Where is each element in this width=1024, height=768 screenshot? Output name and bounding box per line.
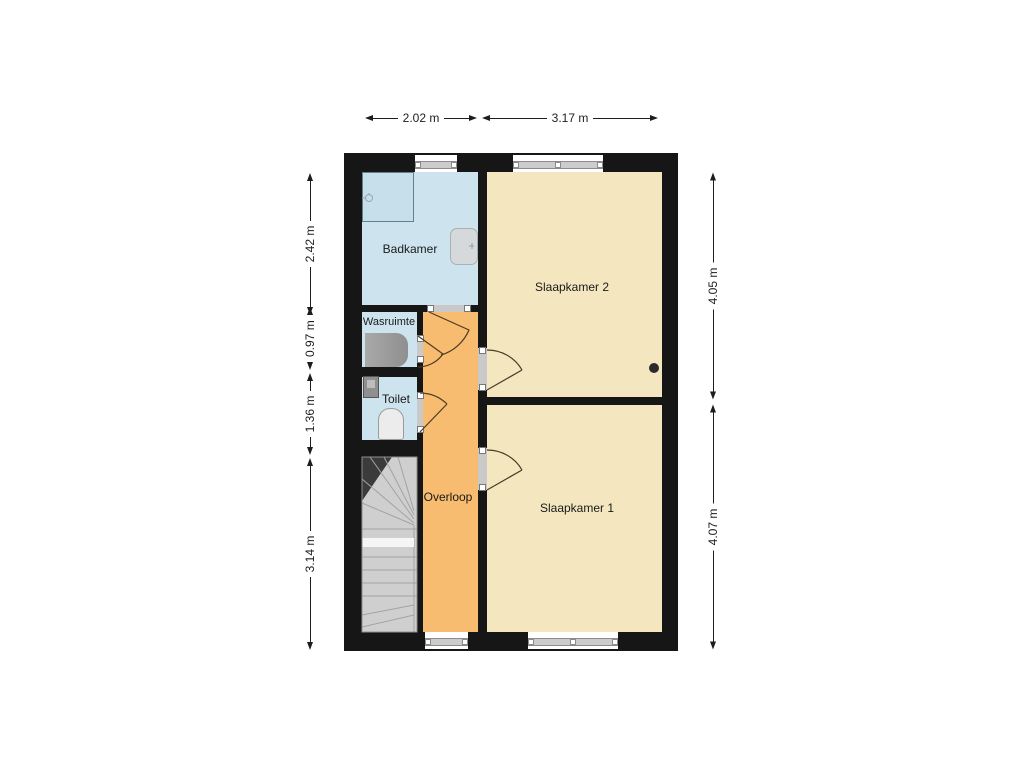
arrow-left-icon xyxy=(307,642,313,650)
floor-plan: Badkamer Wasruimte Toilet Overloop Slaap… xyxy=(344,153,678,651)
dimension-label: 2.42 m xyxy=(303,221,317,268)
arrow-left-icon xyxy=(710,392,716,400)
arrow-left-icon xyxy=(482,115,490,121)
arrow-left-icon xyxy=(307,362,313,370)
room-label-overloop: Overloop xyxy=(424,490,473,504)
dimension-label: 4.05 m xyxy=(706,263,720,310)
arrow-right-icon xyxy=(307,458,313,466)
room-label-slaapkamer-2: Slaapkamer 2 xyxy=(535,280,609,294)
dimension-top-left: 2.02 m xyxy=(365,111,477,125)
dimension-label: 2.02 m xyxy=(398,111,445,125)
staircase xyxy=(362,457,417,632)
room-label-slaapkamer-1: Slaapkamer 1 xyxy=(540,501,614,515)
dimension-label: 3.14 m xyxy=(303,531,317,578)
room-label-toilet: Toilet xyxy=(382,392,410,406)
room-label-badkamer: Badkamer xyxy=(383,242,438,256)
dimension-label: 1.36 m xyxy=(303,391,317,438)
shower-head-icon xyxy=(362,193,373,202)
dimension-left-1: 2.42 m xyxy=(303,173,317,315)
arrow-left-icon xyxy=(710,642,716,650)
dimension-right-1: 4.05 m xyxy=(706,173,720,400)
arrow-right-icon xyxy=(710,405,716,413)
floor-plan-page: 2.02 m 3.17 m 2.42 m 0.97 m 1.36 m 3.14 … xyxy=(0,0,1024,768)
dimension-right-2: 4.07 m xyxy=(706,405,720,650)
arrow-right-icon xyxy=(650,115,658,121)
arrow-right-icon xyxy=(307,307,313,315)
arrow-left-icon xyxy=(307,447,313,455)
dimension-left-2: 0.97 m xyxy=(303,316,317,370)
arrow-right-icon xyxy=(710,173,716,181)
dimension-label: 4.07 m xyxy=(706,504,720,551)
arrow-right-icon xyxy=(469,115,477,121)
room-label-wasruimte: Wasruimte xyxy=(363,316,415,328)
tap-icon xyxy=(469,243,474,249)
arrow-right-icon xyxy=(307,173,313,181)
arrow-left-icon xyxy=(365,115,373,121)
dimension-left-3: 1.36 m xyxy=(303,373,317,455)
dimension-top-right: 3.17 m xyxy=(482,111,658,125)
dimension-label: 0.97 m xyxy=(303,315,317,362)
door-swing-icon xyxy=(418,312,522,490)
arrow-right-icon xyxy=(307,373,313,381)
dimension-left-4: 3.14 m xyxy=(303,458,317,650)
dimension-label: 3.17 m xyxy=(547,111,594,125)
